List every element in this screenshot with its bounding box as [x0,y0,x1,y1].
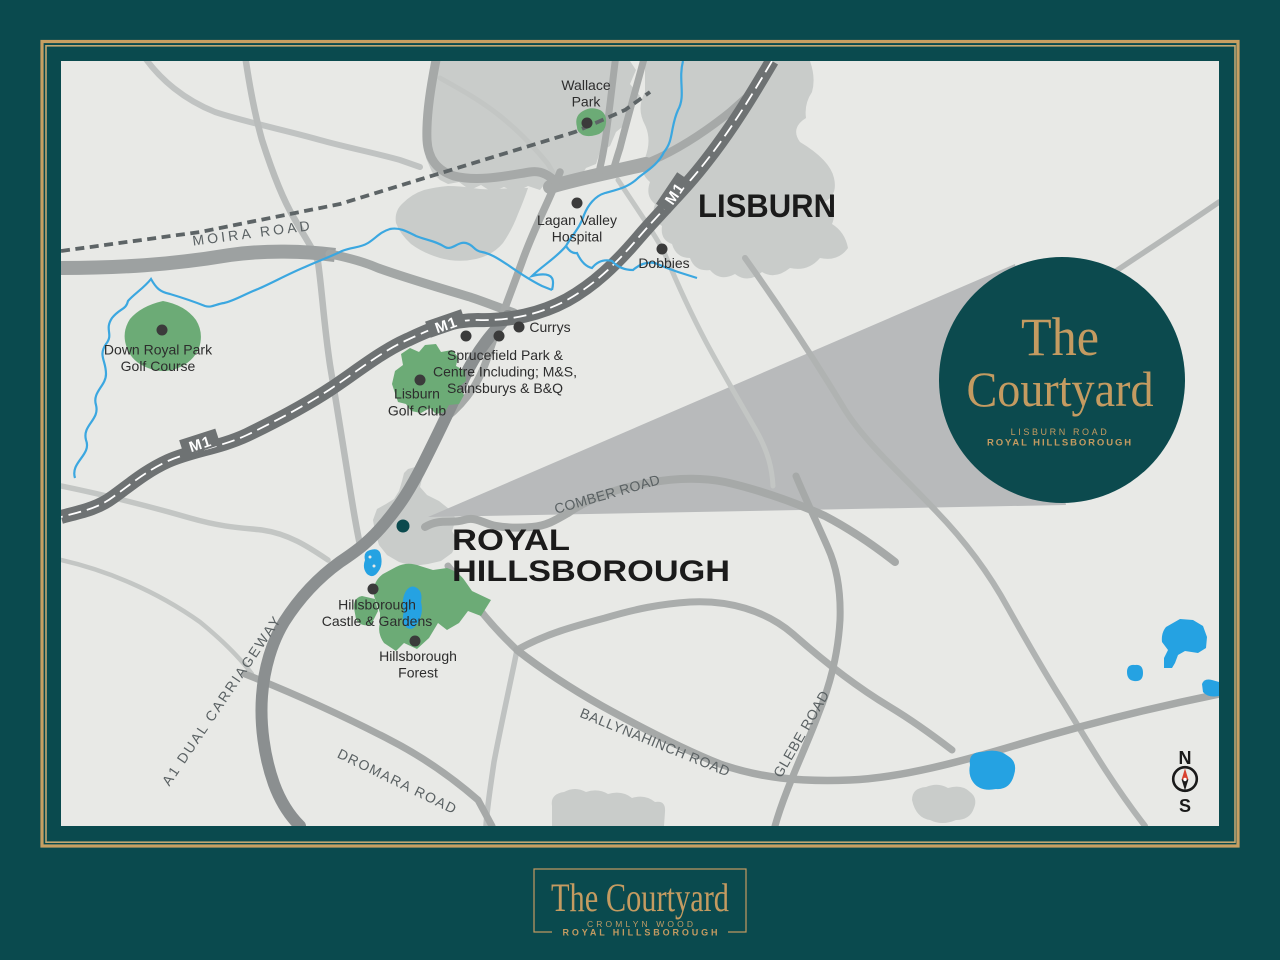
svg-text:Golf Club: Golf Club [388,403,447,419]
svg-text:HILLSBOROUGH: HILLSBOROUGH [452,555,730,588]
svg-text:ROYAL HILLSBOROUGH: ROYAL HILLSBOROUGH [563,928,718,938]
svg-text:Sprucefield Park &: Sprucefield Park & [447,347,564,363]
svg-text:S: S [1179,796,1191,816]
svg-text:Wallace: Wallace [561,77,610,93]
svg-text:Courtyard: Courtyard [967,361,1154,417]
svg-text:Forest: Forest [398,665,438,681]
svg-text:Sainsburys & B&Q: Sainsburys & B&Q [447,380,563,396]
svg-text:LISBURN ROAD: LISBURN ROAD [1011,427,1110,437]
svg-text:Hillsborough: Hillsborough [338,597,416,613]
svg-text:Castle & Gardens: Castle & Gardens [322,613,433,629]
svg-text:LISBURN: LISBURN [698,188,836,224]
svg-text:Dobbies: Dobbies [638,255,689,271]
svg-text:Centre Including; M&S,: Centre Including; M&S, [433,364,577,380]
svg-text:The Courtyard: The Courtyard [551,875,729,920]
svg-text:The: The [1021,307,1099,367]
svg-text:Hospital: Hospital [552,229,603,245]
svg-text:Lagan Valley: Lagan Valley [537,212,617,228]
svg-text:ROYAL HILLSBOROUGH: ROYAL HILLSBOROUGH [987,438,1133,449]
svg-text:Golf Course: Golf Course [121,358,196,374]
svg-text:Currys: Currys [529,319,570,335]
svg-text:ROYAL: ROYAL [452,524,570,557]
svg-text:N: N [1179,748,1192,768]
svg-text:Down Royal Park: Down Royal Park [104,342,213,358]
svg-text:Lisburn: Lisburn [394,386,440,402]
svg-text:Park: Park [572,94,602,110]
svg-text:Hillsborough: Hillsborough [379,648,457,664]
